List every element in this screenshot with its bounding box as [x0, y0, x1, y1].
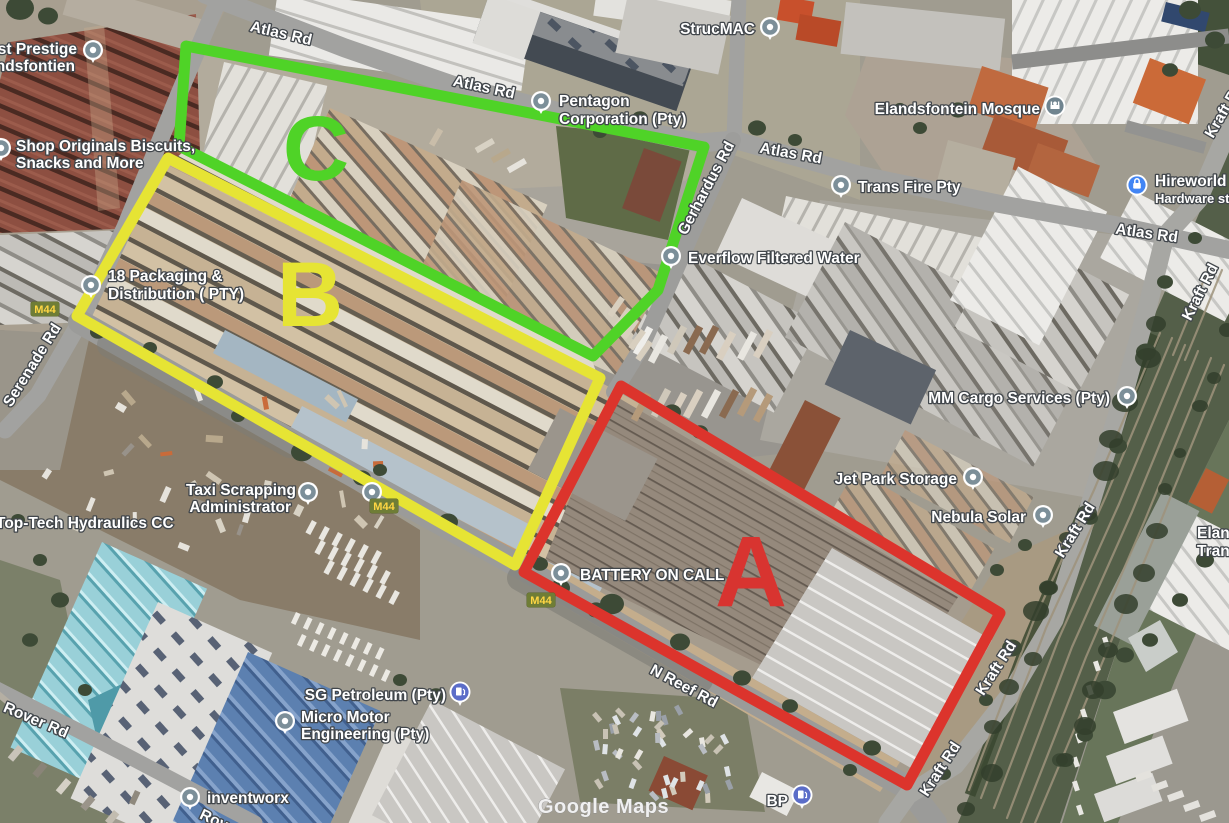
svg-text:B: B — [277, 244, 343, 346]
svg-text:BATTERY ON CALL: BATTERY ON CALL — [580, 567, 724, 584]
svg-text:Eland: Eland — [1197, 525, 1229, 542]
svg-text:Trans Fire Pty: Trans Fire Pty — [858, 179, 961, 196]
svg-text:18 Packaging &: 18 Packaging & — [108, 268, 223, 285]
svg-text:Hardware store: Hardware store — [1155, 191, 1229, 206]
svg-text:MM Cargo Services (Pty): MM Cargo Services (Pty) — [928, 390, 1110, 407]
svg-text:SG Petroleum (Pty): SG Petroleum (Pty) — [305, 687, 446, 704]
svg-text:Jet Park Storage: Jet Park Storage — [835, 471, 958, 488]
svg-text:Corporation (Pty): Corporation (Pty) — [559, 111, 686, 128]
svg-text:Elandsfontein Mosque: Elandsfontein Mosque — [875, 101, 1041, 118]
svg-text:inventworx: inventworx — [207, 790, 289, 807]
svg-text:Engineering (Pty): Engineering (Pty) — [301, 726, 429, 743]
svg-text:M44: M44 — [373, 501, 395, 513]
svg-text:BP: BP — [766, 793, 788, 810]
svg-text:Top-Tech Hydraulics CC: Top-Tech Hydraulics CC — [0, 515, 174, 532]
svg-text:Nebula Solar: Nebula Solar — [931, 509, 1026, 526]
svg-text:Trans: Trans — [1197, 543, 1229, 560]
svg-text:Shop Originals Biscuits,: Shop Originals Biscuits, — [16, 138, 195, 155]
svg-text:Hireworld &: Hireworld & — [1155, 173, 1229, 190]
svg-text:Taxi Scrapping: Taxi Scrapping — [186, 482, 296, 499]
svg-text:Pentagon: Pentagon — [559, 93, 630, 110]
svg-text:vest Prestige: vest Prestige — [0, 41, 77, 58]
svg-text:Distribution ( PTY): Distribution ( PTY) — [108, 286, 244, 303]
svg-text:Micro Motor: Micro Motor — [301, 709, 390, 726]
svg-text:Snacks and More: Snacks and More — [16, 155, 144, 172]
svg-text:M44: M44 — [530, 595, 552, 607]
svg-text:C: C — [283, 98, 349, 200]
svg-text:StrucMAC: StrucMAC — [680, 21, 755, 38]
svg-text:A: A — [715, 516, 787, 628]
svg-text:landsfontien: landsfontien — [0, 58, 75, 75]
svg-text:Google Maps: Google Maps — [538, 796, 669, 818]
svg-text:M44: M44 — [34, 304, 56, 316]
svg-text:Everflow Filtered Water: Everflow Filtered Water — [688, 250, 860, 267]
svg-text:Administrator: Administrator — [189, 499, 291, 516]
